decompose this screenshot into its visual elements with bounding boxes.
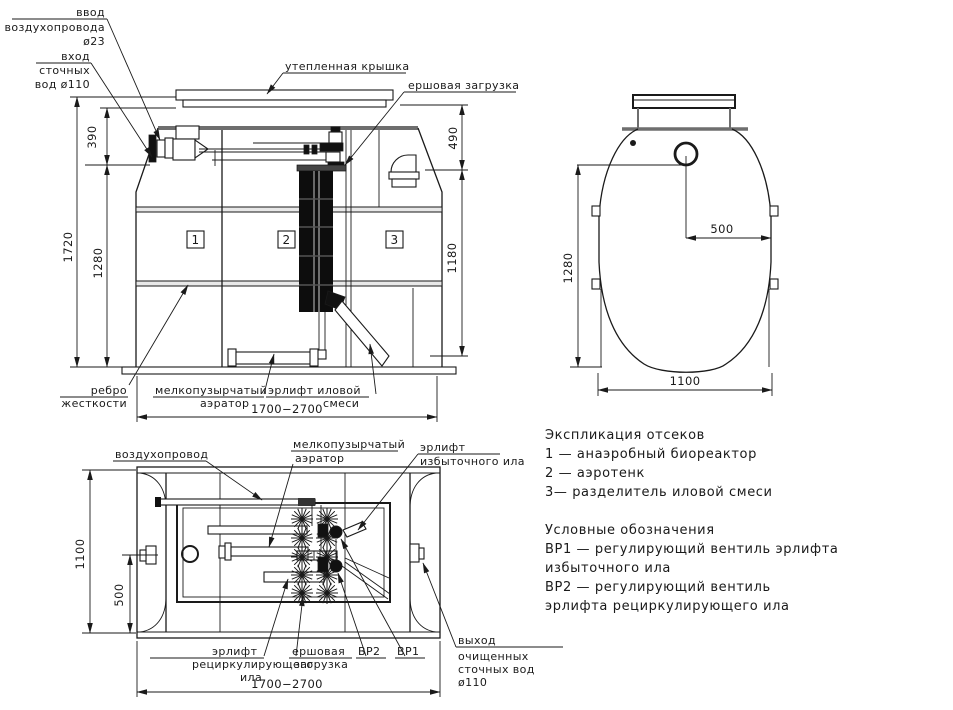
- dim-plan-width: 1100: [73, 539, 87, 570]
- weld-dot: [630, 140, 636, 146]
- inlet-flange: [149, 135, 156, 162]
- dim-body: 1280: [91, 248, 105, 279]
- svg-text:смеси: смеси: [323, 397, 359, 410]
- stiffening-rib-lower: [136, 281, 442, 286]
- front-view: ввод воздухопровода ø23 вход сточных вод…: [5, 6, 520, 422]
- compartment-1: 1: [191, 233, 199, 247]
- stiffening-rib-upper: [136, 207, 442, 212]
- air-inlet-label: ввод: [76, 6, 105, 19]
- dim-total-height: 1720: [61, 232, 75, 263]
- technical-drawing-page: ввод воздухопровода ø23 вход сточных вод…: [0, 0, 953, 710]
- compartment-2: 2: [282, 233, 290, 247]
- svg-text:избыточного ила: избыточного ила: [420, 455, 525, 468]
- stiffening-rib-label: ребро: [91, 384, 127, 397]
- svg-text:ø110: ø110: [458, 676, 487, 689]
- legend-compartment-3: 3— разделитель иловой смеси: [545, 485, 773, 500]
- valve-vr1-plan: [330, 526, 342, 538]
- legend: Экспликация отсеков 1 — анаэробный биоре…: [545, 428, 838, 614]
- dim-right-top: 490: [446, 126, 460, 149]
- dim-top: 390: [85, 125, 99, 148]
- svg-text:воздухопровода: воздухопровода: [5, 21, 105, 34]
- outlet-label: выход: [458, 634, 496, 647]
- sewage-inlet-label: вход: [61, 50, 90, 63]
- svg-text:ø23: ø23: [83, 35, 105, 48]
- outlet-elbow: [389, 155, 419, 187]
- svg-text:сточных: сточных: [39, 64, 90, 77]
- airlift-valve-assembly: [320, 127, 344, 170]
- manhole-plan: [182, 546, 198, 562]
- inlet-pipe-body: [173, 139, 195, 160]
- dim-port-offset: 500: [112, 583, 126, 606]
- legend-title-symbols: Условные обозначения: [545, 523, 715, 538]
- legend-vr1-line1: ВР1 — регулирующий вентиль эрлифта: [545, 542, 838, 557]
- drawing-canvas: ввод воздухопровода ø23 вход сточных вод…: [0, 0, 953, 710]
- excess-airlift-label: эрлифт: [420, 441, 466, 454]
- sludge-airlift-pipe: [335, 301, 389, 366]
- insulated-cover-label: утепленная крышка: [285, 60, 409, 73]
- aerator-label-plan: мелкопузырчатый: [293, 438, 405, 451]
- compartment-3: 3: [390, 233, 398, 247]
- aerator-label-front: мелкопузырчатый: [155, 384, 267, 397]
- legend-title-compartments: Экспликация отсеков: [545, 428, 705, 443]
- sludge-airlift-label: эрлифт иловой: [268, 384, 361, 397]
- outlet-port-plan: [410, 544, 419, 562]
- svg-text:очищенных: очищенных: [458, 650, 529, 663]
- svg-text:аэратор: аэратор: [295, 452, 344, 465]
- tank-base: [122, 367, 456, 374]
- dim-side-width: 1100: [670, 374, 701, 388]
- sewage-inlet-assembly: [149, 126, 208, 162]
- vr2-label: ВР2: [358, 645, 380, 658]
- air-duct-pipe: [157, 499, 315, 505]
- valve-vr2-plan: [330, 560, 342, 572]
- legend-vr2-line1: ВР2 — регулирующий вентиль: [545, 580, 771, 595]
- recirc-airlift-label: эрлифт: [212, 645, 258, 658]
- legend-compartment-2: 2 — аэротенк: [545, 466, 645, 481]
- brush-load-label-plan: ершовая: [292, 645, 345, 658]
- legend-compartment-1: 1 — анаэробный биореактор: [545, 447, 757, 462]
- dim-side-height: 1280: [561, 253, 575, 284]
- svg-text:вод ø110: вод ø110: [35, 78, 90, 91]
- svg-text:сточных вод: сточных вод: [458, 663, 535, 676]
- svg-text:жесткости: жесткости: [61, 397, 127, 410]
- plan-view: воздухопровод мелкопузырчатый аэратор эр…: [73, 438, 563, 697]
- legend-vr2-line2: эрлифта рециркулирующего ила: [545, 599, 790, 614]
- brush-hanger: [297, 165, 346, 171]
- dim-offset: 500: [710, 222, 733, 236]
- air-duct-label: воздухопровод: [115, 448, 208, 461]
- compartment-markers: 1 2 3: [187, 231, 403, 248]
- legend-vr1-line2: избыточного ила: [545, 561, 671, 576]
- dim-length-plan: 1700−2700: [251, 677, 323, 691]
- side-view: 500 1280 1100: [561, 95, 778, 396]
- collar: [633, 95, 735, 108]
- dim-length-front: 1700−2700: [251, 402, 323, 416]
- svg-text:аэратор: аэратор: [200, 397, 249, 410]
- insulated-cover: [176, 90, 393, 100]
- dim-right-body: 1180: [445, 243, 459, 274]
- air-inlet-cap: [176, 126, 199, 139]
- brush-load-label: ершовая загрузка: [408, 79, 519, 92]
- svg-text:загрузка: загрузка: [294, 658, 348, 671]
